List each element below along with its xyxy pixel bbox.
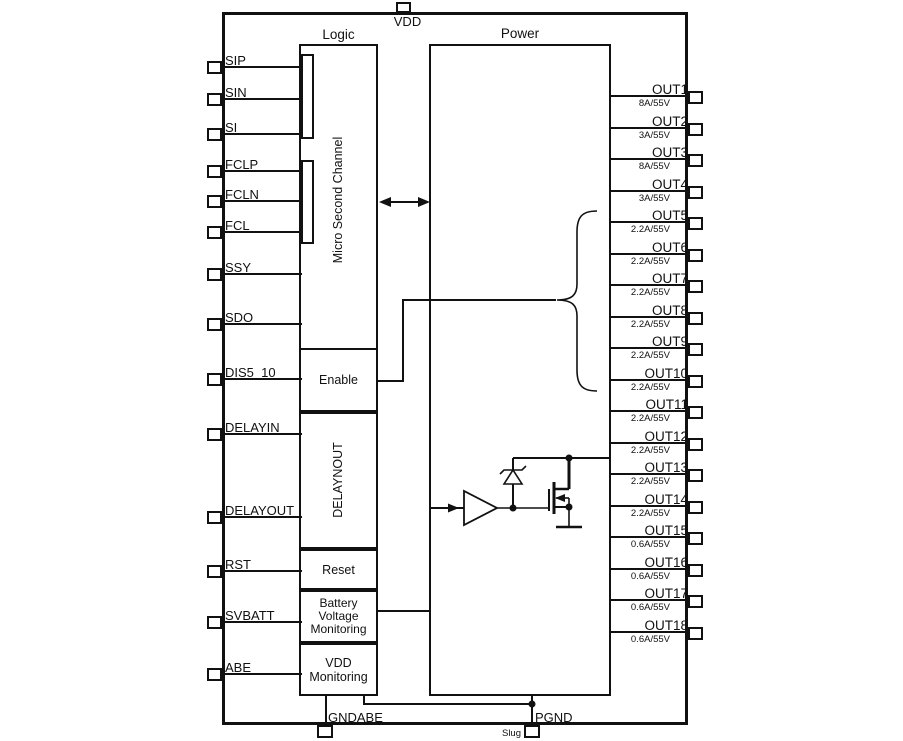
power-title: Power [429, 26, 611, 41]
output-label: OUT16 [644, 555, 688, 570]
output-pad [688, 249, 703, 262]
pin-pad [207, 616, 222, 629]
output-pad [688, 532, 703, 545]
pin-label: FCLN [225, 187, 259, 202]
pin-pad [207, 668, 222, 681]
pin-pad [207, 318, 222, 331]
pin-pad [207, 268, 222, 281]
vdd-pad [396, 2, 411, 13]
output-label: OUT15 [644, 523, 688, 538]
output-rating: 8A/55V [639, 161, 670, 172]
battery-voltage-monitoring-block: Battery Voltage Monitoring [299, 590, 378, 643]
output-label: OUT6 [652, 240, 688, 255]
output-pad [688, 154, 703, 167]
output-pad [688, 343, 703, 356]
output-pad [688, 564, 703, 577]
battery-voltage-monitoring-label: Battery Voltage Monitoring [301, 597, 376, 636]
output-rating: 2.2A/55V [631, 350, 670, 361]
output-label: OUT7 [652, 271, 688, 286]
pin-pad [207, 61, 222, 74]
pin-label: FCLP [225, 157, 258, 172]
serial-input-bus-bar [301, 54, 314, 139]
delaynout-label: DELAYNOUT [331, 442, 345, 517]
output-label: OUT4 [652, 177, 688, 192]
pin-label: DIS5_10 [225, 365, 276, 380]
output-label: OUT13 [644, 460, 688, 475]
output-label: OUT8 [652, 303, 688, 318]
reset-block: Reset [299, 549, 378, 590]
output-pad [688, 91, 703, 104]
enable-label: Enable [319, 373, 358, 387]
output-rating: 2.2A/55V [631, 445, 670, 456]
output-rating: 3A/55V [639, 193, 670, 204]
power-block [429, 44, 611, 696]
gndabe-pad [317, 725, 333, 738]
output-pad [688, 438, 703, 451]
vdd-monitoring-block: VDD Monitoring [299, 643, 378, 696]
output-pad [688, 186, 703, 199]
output-label: OUT9 [652, 334, 688, 349]
output-rating: 0.6A/55V [631, 602, 670, 613]
output-pad [688, 312, 703, 325]
output-pad [688, 280, 703, 293]
output-rating: 8A/55V [639, 98, 670, 109]
output-label: OUT11 [645, 397, 688, 412]
pin-label: FCL [225, 218, 250, 233]
block-diagram: VDD Logic Power Enable Reset Battery Vol… [0, 0, 903, 741]
output-pad [688, 595, 703, 608]
enable-block: Enable [299, 348, 378, 412]
pin-pad [207, 511, 222, 524]
output-pad [688, 217, 703, 230]
pgnd-pad [524, 725, 540, 738]
output-label: OUT1 [652, 82, 688, 97]
output-label: OUT12 [644, 429, 688, 444]
output-rating: 2.2A/55V [631, 476, 670, 487]
fcl-input-bus-bar [301, 160, 314, 244]
pin-label: SDO [225, 310, 253, 325]
logic-title: Logic [299, 27, 378, 42]
output-rating: 0.6A/55V [631, 539, 670, 550]
reset-label: Reset [322, 563, 355, 577]
pin-label: RST [225, 557, 251, 572]
pin-pad [207, 165, 222, 178]
output-pad [688, 501, 703, 514]
pin-pad [207, 195, 222, 208]
output-label: OUT3 [652, 145, 688, 160]
gndabe-label: GNDABE [328, 710, 383, 725]
output-rating: 0.6A/55V [631, 634, 670, 645]
pin-label: ABE [225, 660, 251, 675]
pin-label: SSY [225, 260, 251, 275]
pin-label: DELAYOUT [225, 503, 294, 518]
pin-label: SVBATT [225, 608, 275, 623]
pin-label: SI [225, 120, 237, 135]
pin-pad [207, 565, 222, 578]
output-rating: 2.2A/55V [631, 508, 670, 519]
pin-pad [207, 226, 222, 239]
pin-pad [207, 93, 222, 106]
output-pad [688, 123, 703, 136]
output-label: OUT17 [644, 586, 688, 601]
output-rating: 2.2A/55V [631, 224, 670, 235]
output-rating: 2.2A/55V [631, 319, 670, 330]
output-label: OUT14 [644, 492, 688, 507]
output-label: OUT10 [644, 366, 688, 381]
pin-pad [207, 128, 222, 141]
output-label: OUT2 [652, 114, 688, 129]
pin-pad [207, 373, 222, 386]
output-label: OUT5 [652, 208, 688, 223]
output-label: OUT18 [644, 618, 688, 633]
pin-label: SIN [225, 85, 247, 100]
output-rating: 0.6A/55V [631, 571, 670, 582]
output-rating: 2.2A/55V [631, 382, 670, 393]
output-rating: 2.2A/55V [631, 413, 670, 424]
pin-label: SIP [225, 53, 246, 68]
pgnd-label: PGND [535, 710, 573, 725]
slug-label: Slug [494, 728, 521, 739]
output-pad [688, 375, 703, 388]
vdd-label: VDD [380, 14, 435, 29]
output-rating: 3A/55V [639, 130, 670, 141]
vdd-monitoring-label: VDD Monitoring [301, 656, 376, 684]
output-rating: 2.2A/55V [631, 287, 670, 298]
output-pad [688, 406, 703, 419]
pin-pad [207, 428, 222, 441]
micro-second-channel-label: Micro Second Channel [331, 137, 345, 263]
pin-label: DELAYIN [225, 420, 280, 435]
output-rating: 2.2A/55V [631, 256, 670, 267]
output-pad [688, 469, 703, 482]
output-pad [688, 627, 703, 640]
